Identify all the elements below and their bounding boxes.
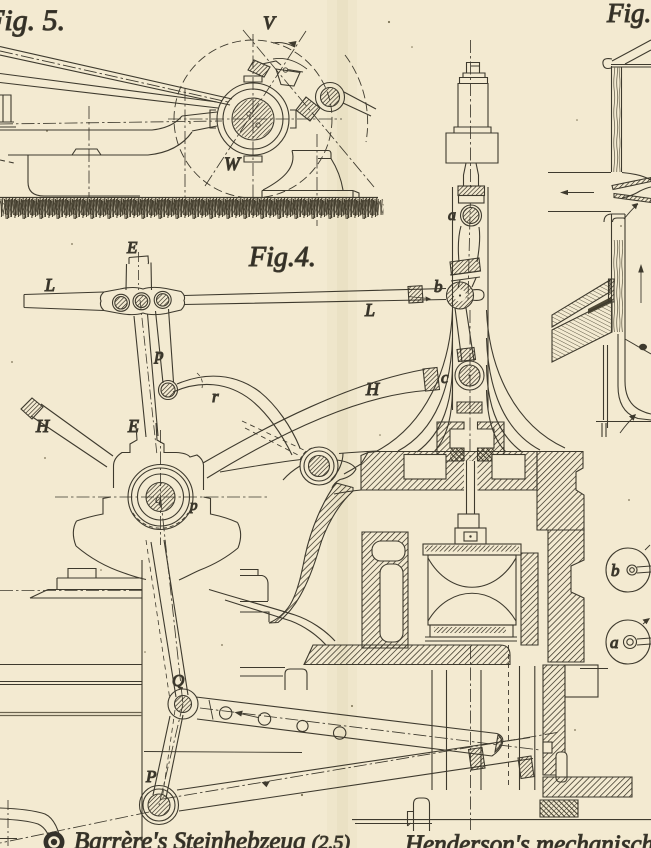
svg-text:E: E [127, 416, 139, 436]
svg-text:p: p [189, 498, 198, 514]
svg-text:Fig. 5.: Fig. 5. [0, 4, 65, 37]
svg-text:Barrère's Steinhebzeug (2.5): Barrère's Steinhebzeug (2.5) [74, 828, 350, 848]
svg-text:H: H [35, 416, 50, 436]
svg-text:Q: Q [172, 671, 184, 690]
svg-text:L: L [44, 275, 55, 295]
svg-text:Henderson's mechanisch: Henderson's mechanisch [404, 831, 651, 848]
svg-text:r: r [212, 387, 219, 406]
svg-text:a: a [610, 633, 619, 652]
svg-text:Fig.4.: Fig.4. [248, 242, 316, 273]
svg-text:P: P [145, 767, 156, 786]
svg-text:p: p [154, 345, 164, 364]
svg-text:L: L [364, 300, 375, 320]
svg-text:Fig.: Fig. [606, 0, 651, 28]
svg-text:b: b [611, 561, 620, 580]
svg-text:b: b [434, 277, 443, 296]
svg-text:E: E [126, 238, 138, 257]
svg-text:H: H [365, 379, 380, 399]
svg-text:a: a [448, 207, 456, 224]
svg-text:W: W [224, 154, 242, 175]
